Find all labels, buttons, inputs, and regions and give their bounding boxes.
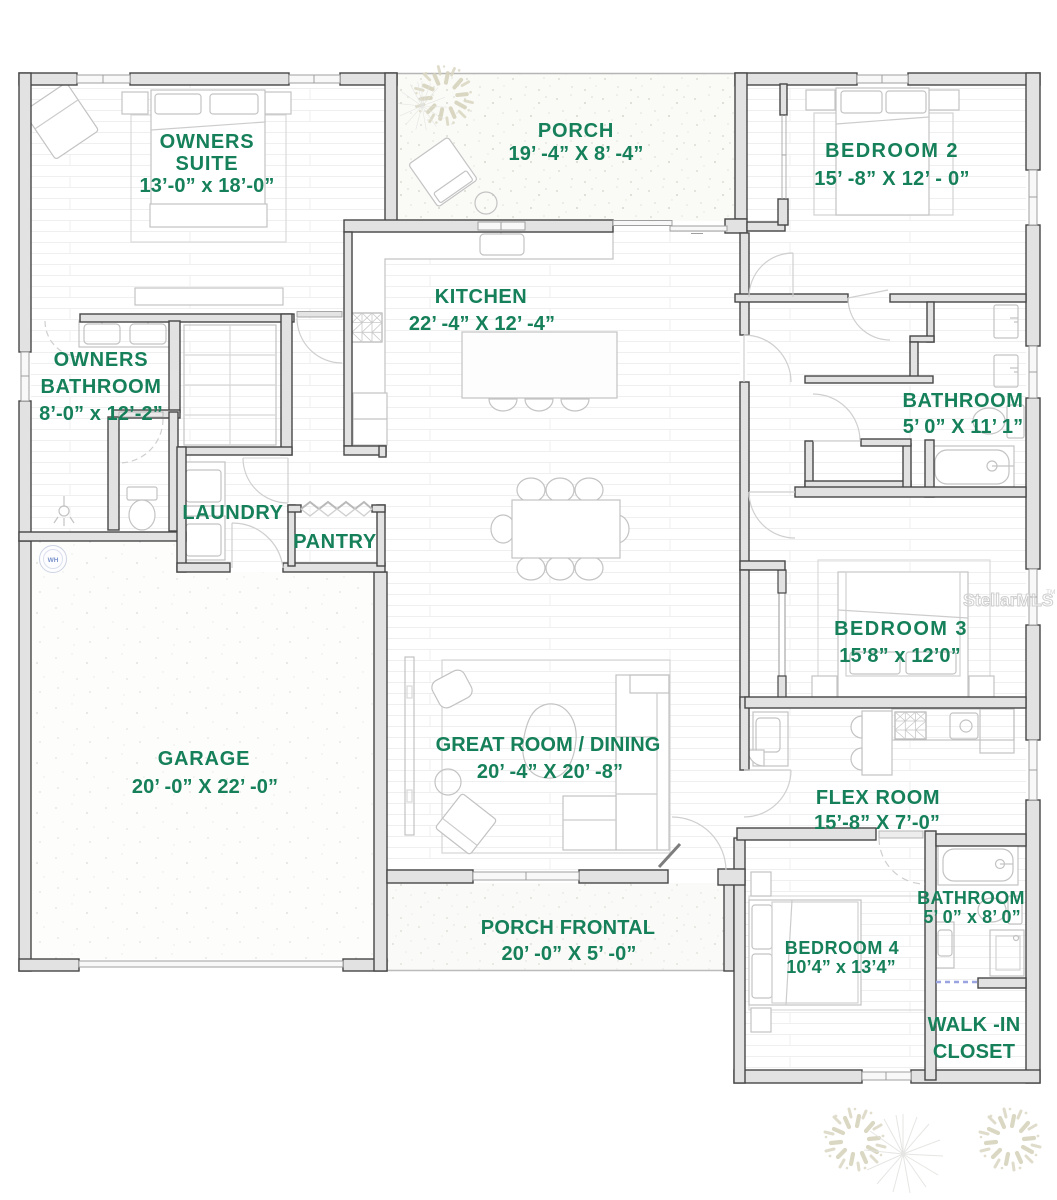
svg-text:20’ -4” X 20’ -8”: 20’ -4” X 20’ -8” [477, 761, 623, 783]
svg-text:PORCH: PORCH [538, 120, 614, 142]
svg-text:BEDROOM 2: BEDROOM 2 [825, 140, 959, 162]
svg-text:22’ -4” X 12’ -4”: 22’ -4” X 12’ -4” [409, 313, 555, 335]
svg-text:8’-0” x 12’-2”: 8’-0” x 12’-2” [39, 403, 163, 425]
svg-text:CLOSET: CLOSET [933, 1041, 1015, 1063]
svg-text:SUITE: SUITE [176, 153, 239, 175]
svg-text:WH: WH [48, 557, 59, 564]
svg-text:BATHROOM: BATHROOM [917, 888, 1025, 908]
svg-text:10’4” x 13’4”: 10’4” x 13’4” [786, 957, 895, 977]
svg-text:PORCH FRONTAL: PORCH FRONTAL [481, 917, 655, 939]
svg-text:20’ -0” X 22’ -0”: 20’ -0” X 22’ -0” [132, 776, 278, 798]
svg-text:GREAT ROOM / DINING: GREAT ROOM / DINING [436, 734, 661, 756]
svg-text:PANTRY: PANTRY [293, 531, 377, 553]
svg-text:BATHROOM: BATHROOM [40, 376, 161, 398]
svg-text:BATHROOM: BATHROOM [902, 390, 1023, 412]
svg-text:OWNERS: OWNERS [160, 131, 255, 153]
svg-text:GARAGE: GARAGE [158, 748, 251, 770]
svg-text:15’ -8” X 12’ - 0”: 15’ -8” X 12’ - 0” [814, 168, 970, 190]
svg-text:KITCHEN: KITCHEN [435, 286, 527, 308]
svg-text:WALK -IN: WALK -IN [928, 1014, 1021, 1036]
svg-text:FLEX ROOM: FLEX ROOM [816, 787, 940, 809]
svg-text:LAUNDRY: LAUNDRY [182, 502, 283, 524]
svg-text:19’ -4” X 8’ -4”: 19’ -4” X 8’ -4” [508, 143, 643, 165]
svg-text:StellarMLS: StellarMLS [963, 590, 1053, 610]
svg-text:BEDROOM 4: BEDROOM 4 [785, 938, 899, 958]
svg-text:15’8” x 12’0”: 15’8” x 12’0” [839, 645, 960, 667]
svg-text:TM: TM [1046, 589, 1055, 596]
svg-text:20’ -0” X 5’ -0”: 20’ -0” X 5’ -0” [501, 943, 636, 965]
svg-text:BEDROOM 3: BEDROOM 3 [834, 618, 968, 640]
svg-text:OWNERS: OWNERS [54, 349, 149, 371]
svg-text:15’-8” X 7’-0”: 15’-8” X 7’-0” [814, 812, 940, 834]
svg-text:5’ 0” x 8’ 0”: 5’ 0” x 8’ 0” [923, 907, 1020, 927]
svg-text:13’-0” x 18’-0”: 13’-0” x 18’-0” [140, 175, 275, 197]
svg-text:5’ 0” X 11’ 1”: 5’ 0” X 11’ 1” [903, 416, 1023, 438]
